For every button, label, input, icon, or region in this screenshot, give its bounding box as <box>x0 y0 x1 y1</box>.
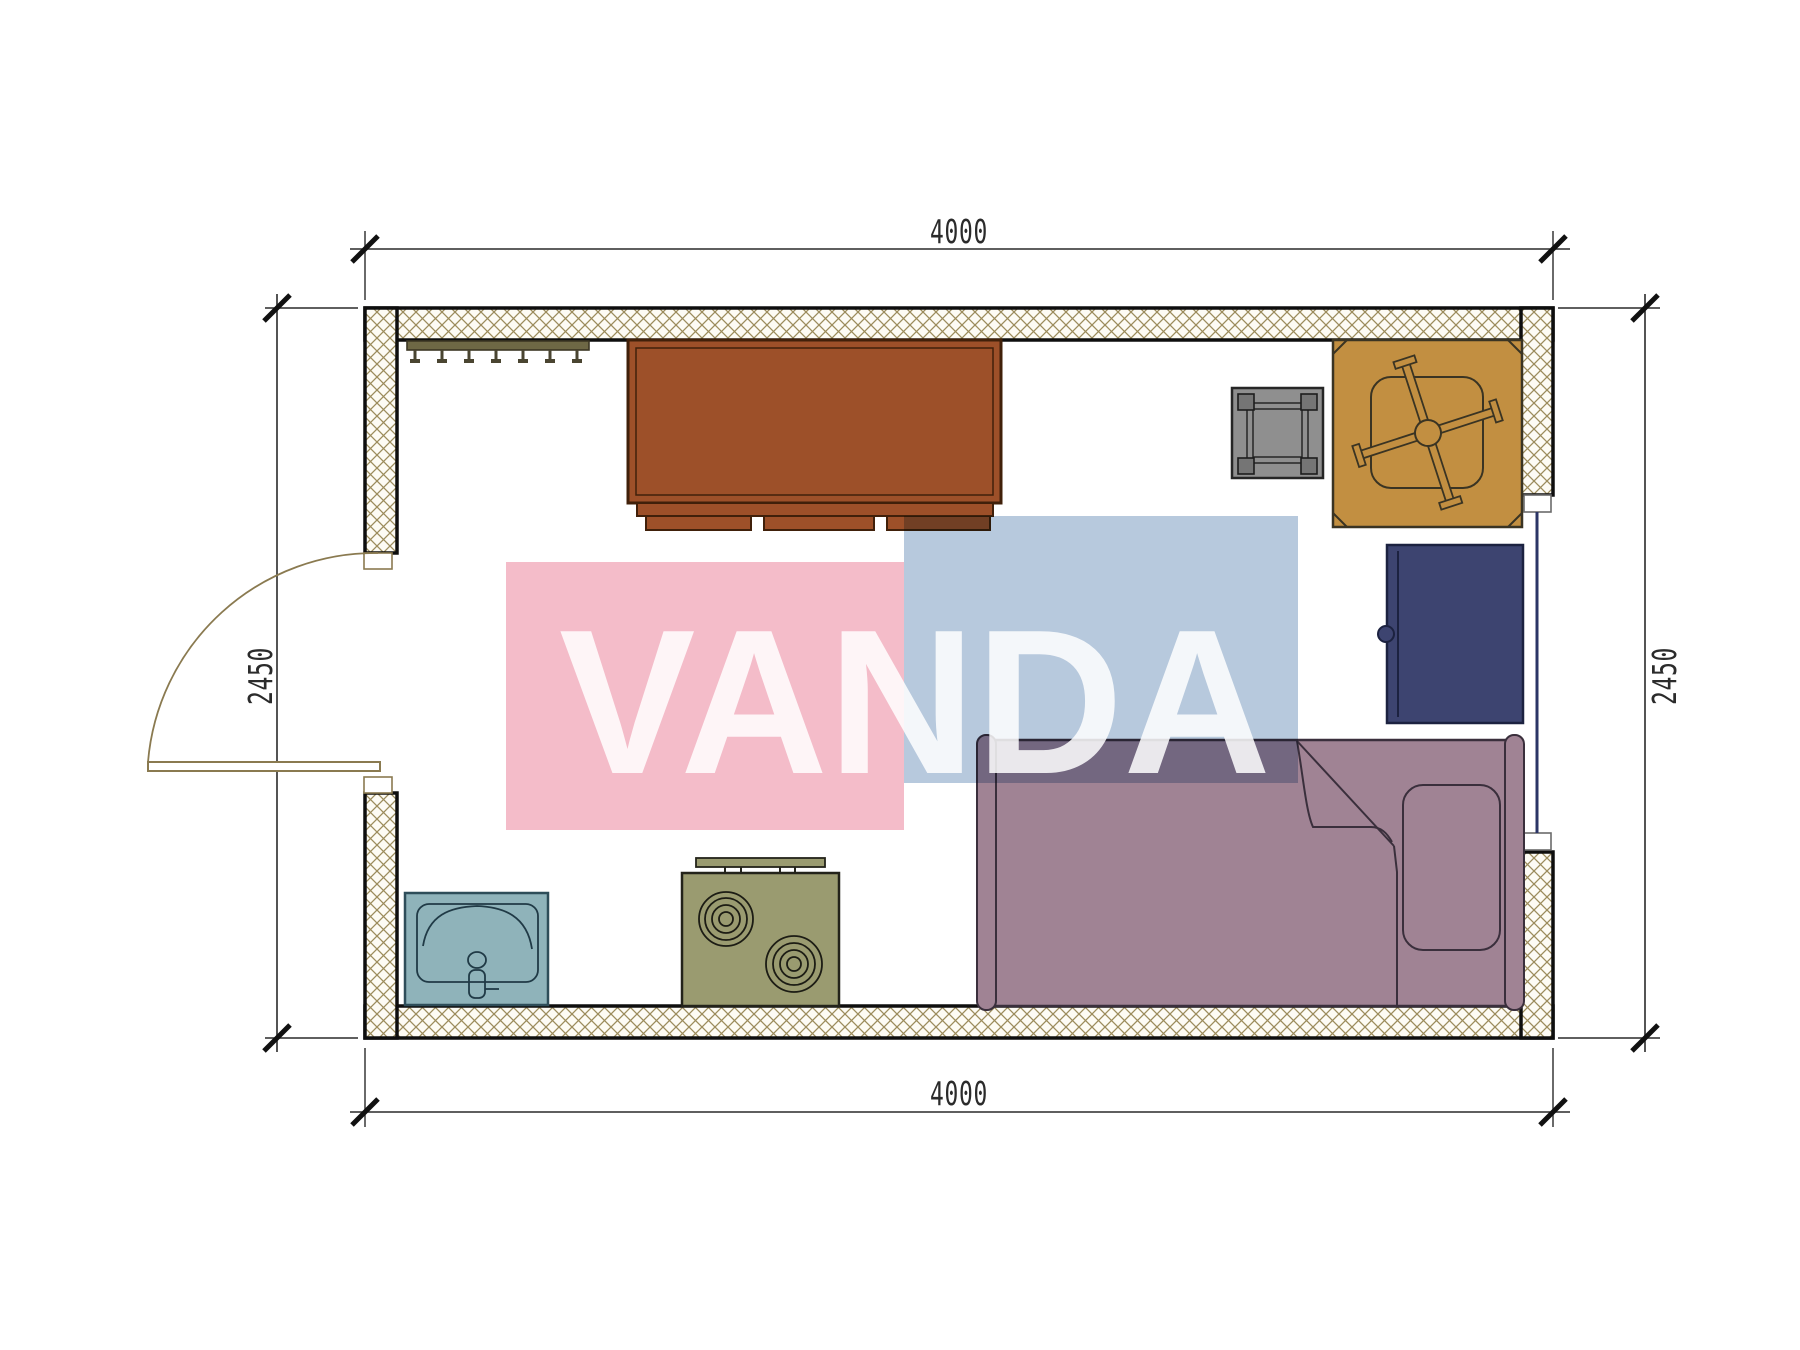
dimension-top: 4000 <box>350 212 1570 300</box>
coat-rack <box>407 341 589 363</box>
door-jamb <box>364 553 392 569</box>
dimension-label-top: 4000 <box>930 212 988 251</box>
floor-plan-page: 4000 4000 2450 2450 <box>0 0 1800 1350</box>
desk <box>628 340 1001 530</box>
stool <box>1232 388 1323 478</box>
wall-left-lower <box>365 793 397 1038</box>
cabinet <box>1378 545 1523 723</box>
dimension-bottom: 4000 <box>350 1048 1570 1127</box>
dimension-left: 2450 <box>241 294 358 1052</box>
stove <box>682 858 839 1006</box>
bed-pillow <box>1403 785 1500 950</box>
window-frame <box>1524 833 1551 850</box>
stove-back-rail <box>696 858 825 867</box>
wall-right-lower <box>1521 852 1553 1038</box>
coat-rack-hooks <box>410 350 582 363</box>
door-jamb <box>364 777 392 793</box>
cabinet-body <box>1387 545 1523 723</box>
window-frame <box>1524 495 1551 512</box>
sink <box>405 893 548 1005</box>
stove-body <box>682 873 839 1006</box>
watermark-text: VANDA <box>559 587 1271 817</box>
bed-footboard-post <box>1505 735 1524 1010</box>
square-table <box>1332 336 1524 530</box>
desk-drawer <box>764 516 874 530</box>
window <box>1524 495 1551 850</box>
dimension-label-bottom: 4000 <box>930 1074 988 1113</box>
wall-right-upper <box>1521 308 1553 495</box>
wall-left-upper <box>365 308 397 553</box>
desk-rail <box>637 503 993 516</box>
wall-bottom <box>365 1006 1553 1038</box>
watermark: VANDA <box>506 516 1298 830</box>
desk-top <box>628 340 1001 503</box>
cabinet-knob <box>1378 626 1394 642</box>
dimension-label-left: 2450 <box>241 647 280 705</box>
dimension-right: 2450 <box>1558 294 1684 1052</box>
floor-plan-drawing: 4000 4000 2450 2450 <box>0 0 1800 1350</box>
sink-body <box>405 893 548 1005</box>
door-leaf <box>148 762 380 771</box>
wall-top <box>365 308 1553 340</box>
dimension-label-right: 2450 <box>1645 647 1684 705</box>
desk-drawer <box>646 516 751 530</box>
coat-rack-bar <box>407 341 589 350</box>
